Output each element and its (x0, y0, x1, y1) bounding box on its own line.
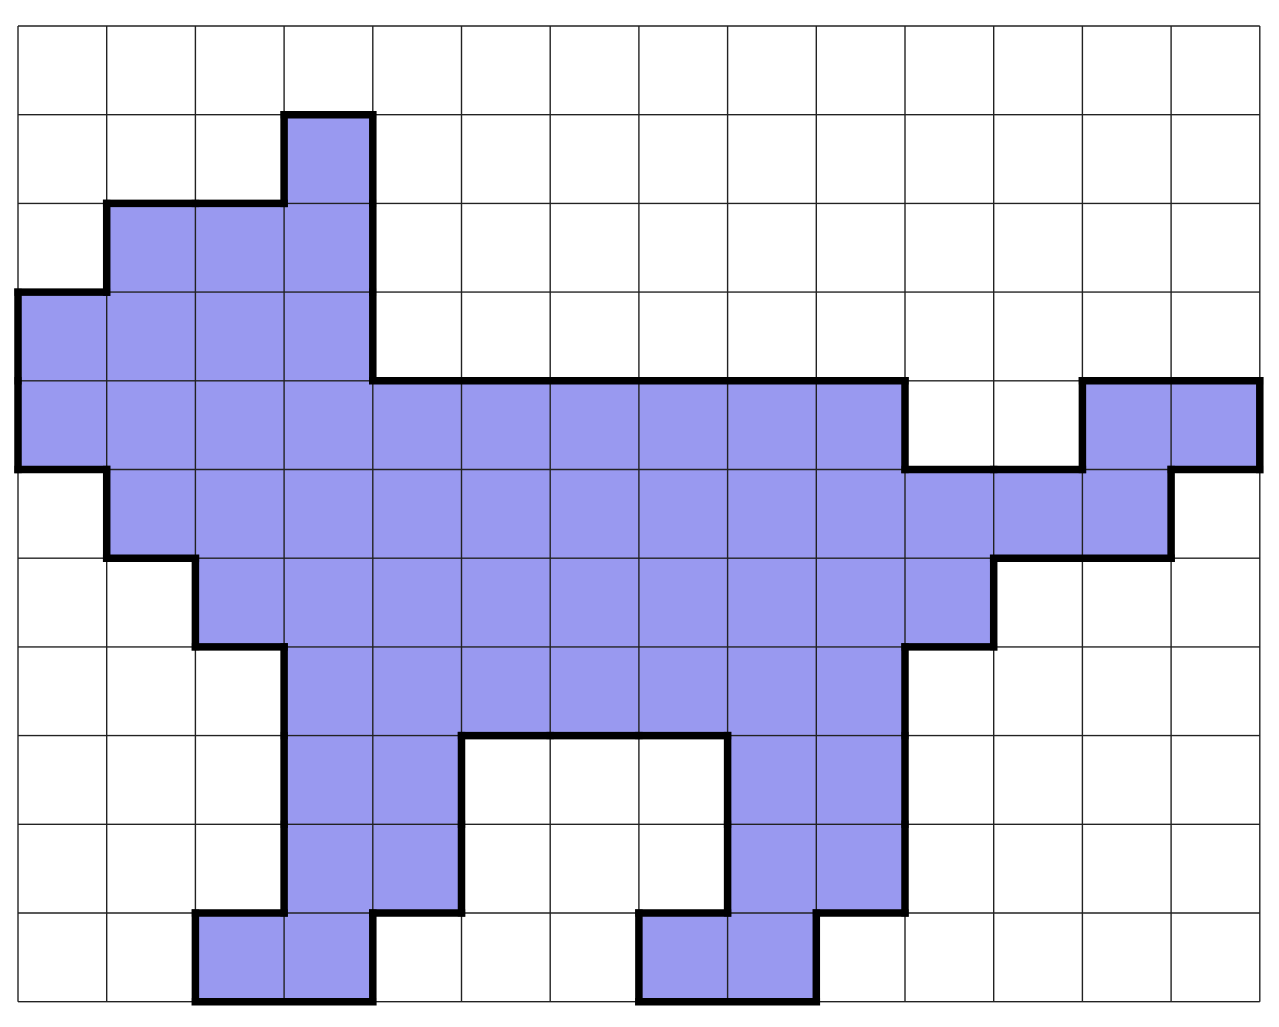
filled-cell (284, 470, 373, 559)
filled-cell (728, 913, 817, 1002)
filled-cell (816, 558, 905, 647)
filled-cell (284, 736, 373, 825)
filled-cell (284, 381, 373, 470)
filled-cell (639, 381, 728, 470)
filled-cell (728, 381, 817, 470)
filled-cell (195, 381, 284, 470)
filled-cell (462, 470, 551, 559)
filled-cell (550, 470, 639, 559)
filled-cell (816, 824, 905, 913)
filled-cell (18, 381, 107, 470)
filled-cell (1082, 470, 1171, 559)
filled-cell (284, 824, 373, 913)
filled-cell (284, 558, 373, 647)
filled-cell (284, 647, 373, 736)
filled-cell (195, 913, 284, 1002)
filled-cell (728, 647, 817, 736)
filled-cell (284, 913, 373, 1002)
filled-cell (373, 381, 462, 470)
filled-cell (284, 292, 373, 381)
filled-cell (284, 115, 373, 204)
filled-cell (107, 292, 196, 381)
filled-cell (905, 470, 994, 559)
filled-cell (905, 558, 994, 647)
filled-cell (816, 470, 905, 559)
worksheet-canvas (0, 0, 1279, 1027)
filled-cell (639, 470, 728, 559)
filled-cell (195, 292, 284, 381)
filled-cell (107, 203, 196, 292)
filled-cell (728, 470, 817, 559)
filled-cell (816, 647, 905, 736)
grid-figure (0, 0, 1279, 1027)
filled-cell (462, 647, 551, 736)
filled-cell (373, 647, 462, 736)
filled-cell (1171, 381, 1260, 470)
filled-cell (18, 292, 107, 381)
filled-cell (816, 381, 905, 470)
filled-cell (1082, 381, 1171, 470)
filled-cell (195, 558, 284, 647)
filled-cell (728, 558, 817, 647)
filled-cell (728, 824, 817, 913)
filled-cell (195, 203, 284, 292)
filled-cell (994, 470, 1083, 559)
filled-cell (373, 736, 462, 825)
filled-cell (462, 381, 551, 470)
filled-cell (373, 470, 462, 559)
filled-cell (639, 913, 728, 1002)
filled-cell (107, 381, 196, 470)
filled-cell (816, 736, 905, 825)
filled-cell (373, 558, 462, 647)
filled-cell (639, 558, 728, 647)
filled-cell (107, 470, 196, 559)
filled-cell (550, 647, 639, 736)
filled-cell (550, 558, 639, 647)
filled-cell (284, 203, 373, 292)
filled-cell (728, 736, 817, 825)
filled-cell (373, 824, 462, 913)
filled-cell (550, 381, 639, 470)
filled-cell (195, 470, 284, 559)
filled-cell (462, 558, 551, 647)
filled-cell (639, 647, 728, 736)
